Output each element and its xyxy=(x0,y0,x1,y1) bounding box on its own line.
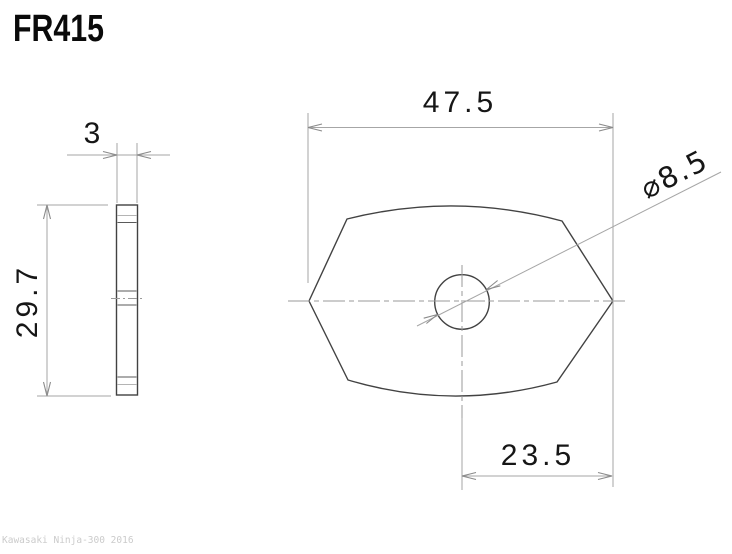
side-view xyxy=(111,205,143,395)
front-view-plate-outline xyxy=(309,206,613,396)
dimension-width: 47.5 xyxy=(308,86,613,487)
technical-drawing-canvas: FR415 47.5 xyxy=(0,0,732,554)
dimension-width-value: 47.5 xyxy=(423,86,497,119)
dimension-hole-offset-value: 23.5 xyxy=(501,439,575,472)
dimension-hole-diameter: ⌀8.5 xyxy=(417,143,721,326)
watermark-text: Kawasaki Ninja-300 2016 xyxy=(2,535,134,546)
side-view-plate-outline xyxy=(117,205,138,395)
dimension-height: 29.7 xyxy=(11,205,111,396)
drawing-page: FR415 47.5 xyxy=(0,0,732,554)
leader-line xyxy=(417,172,721,326)
dimension-height-value: 29.7 xyxy=(11,264,44,338)
dimension-thickness-value: 3 xyxy=(84,117,105,150)
part-number-title: FR415 xyxy=(13,8,104,50)
front-view xyxy=(288,206,626,418)
dimension-thickness: 3 xyxy=(67,117,170,203)
dimension-hole-offset: 23.5 xyxy=(462,418,612,490)
